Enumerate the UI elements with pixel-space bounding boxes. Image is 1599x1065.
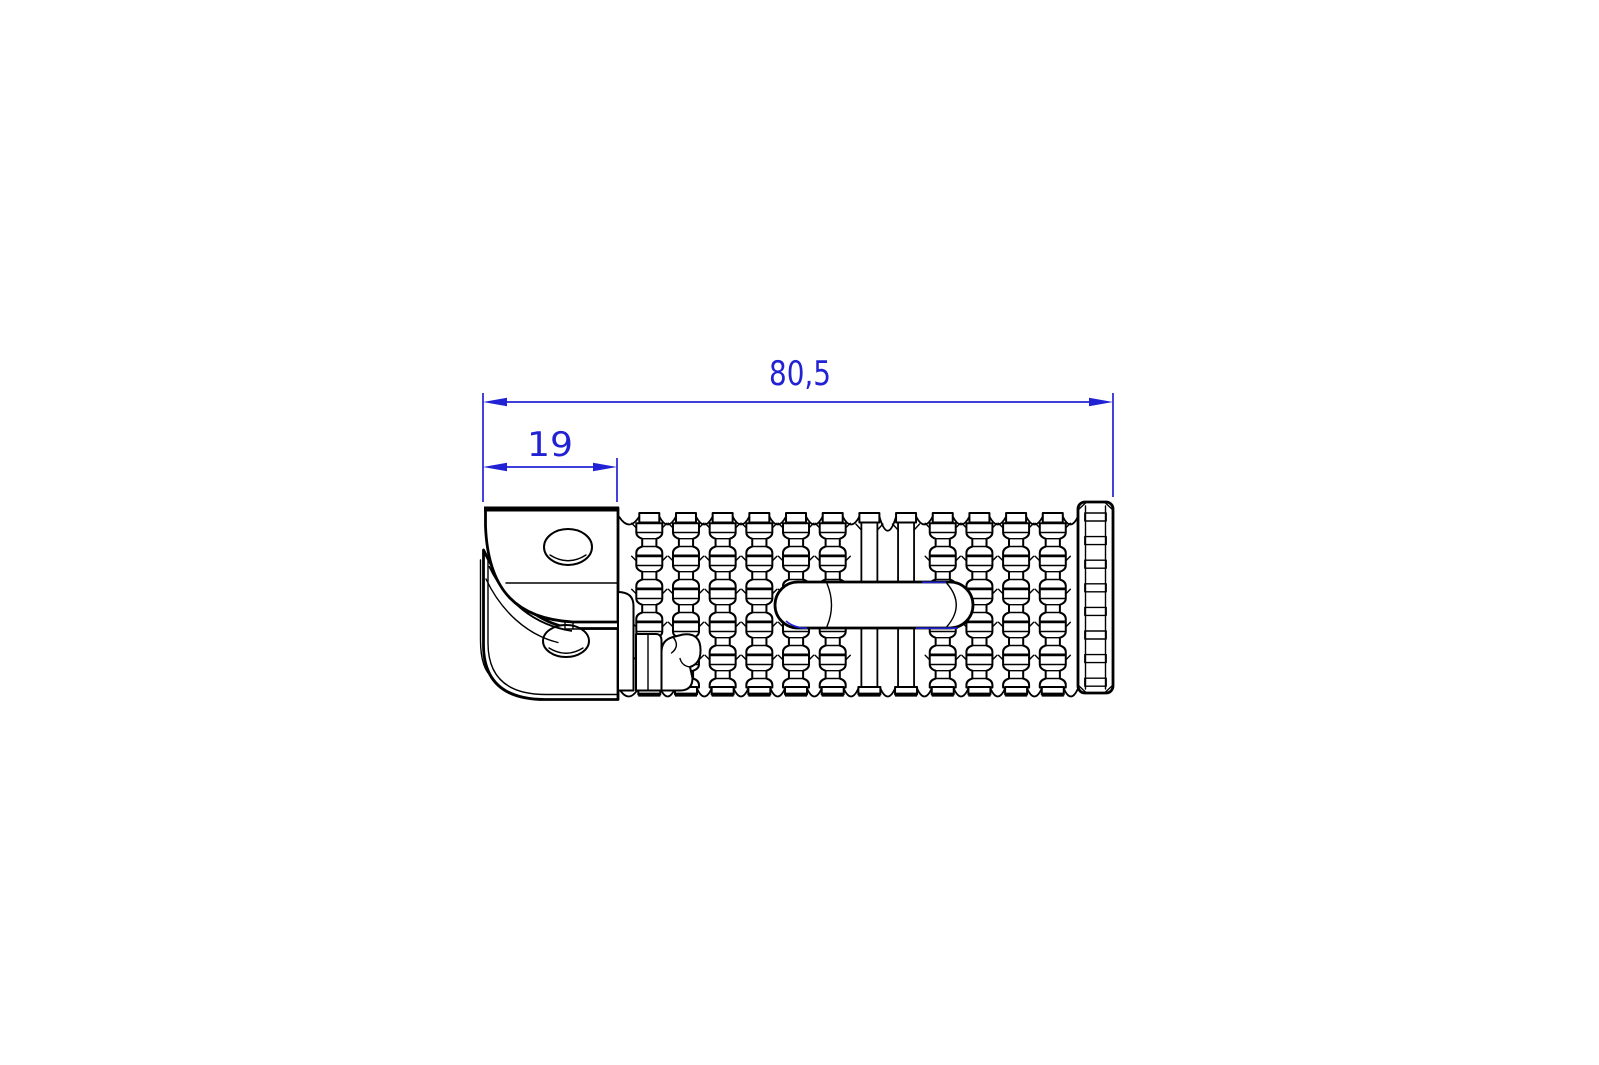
rib-column-tip [969,513,989,523]
rib-spool-unit [668,523,703,555]
rib-column-tip [896,513,916,523]
rib-spool-unit [742,655,777,687]
rib-column-tip [823,513,843,523]
rib-spool-unit [1035,556,1070,588]
dimension-annotations: 80,5 19 [483,354,1113,502]
rib-spool-unit [742,523,777,555]
mounting-bracket [481,508,620,700]
bottom-scallop [844,689,859,697]
slot-outline [775,582,973,628]
rib-spool-unit [632,523,667,555]
rib-spool-unit [815,523,850,555]
rib-spool-unit [705,556,740,588]
rib-spool-unit [742,556,777,588]
rib-spool-unit [705,589,740,621]
end-cap-outline [1078,502,1113,693]
pivot-flange [618,592,634,691]
rib-column-tip [1043,513,1063,523]
top-scallop [879,517,896,531]
bottom-scallop [697,689,712,697]
rib-spool-unit [1035,589,1070,621]
end-cap [1078,502,1113,693]
rib-column-tip [676,513,696,523]
rib-spool-unit [668,556,703,588]
rib-spool-unit [925,523,960,555]
dimension-bracket-width: 19 [483,425,617,502]
rib-spool-unit [705,622,740,654]
rib-column-tip [859,513,879,523]
rib-spool-unit [1035,622,1070,654]
rib-spool-unit [1035,523,1070,555]
rib-wing [893,524,920,530]
arrowhead-left [483,463,507,472]
rib-spool-unit [999,523,1034,555]
technical-drawing-canvas: 80,5 19 [0,0,1599,1065]
footpeg-slot [775,582,973,628]
bottom-scallop [880,689,895,697]
bottom-scallop [1027,689,1042,697]
rib-spool-unit [778,523,813,555]
bottom-scallop [917,689,932,697]
rib-column-tip [1006,513,1026,523]
rib-spool-unit [742,589,777,621]
bottom-scallop [1064,689,1078,697]
bracket-width-label: 19 [527,425,573,465]
rib-spool-unit [962,556,997,588]
rib-column-tip [749,513,769,523]
arrowhead-left [483,398,507,407]
bottom-scallop [954,689,969,697]
rib-spool-unit [962,523,997,555]
rib-spool-unit [999,556,1034,588]
rib-spool-unit [632,589,667,621]
bottom-scallop [807,689,822,697]
drawing-page: 80,5 19 [0,0,1599,1065]
bottom-scallop [770,689,785,697]
rib-spool-unit [705,655,740,687]
rib-spool-unit [815,655,850,687]
rib-spool-unit [668,589,703,621]
arrowhead-right [593,463,617,472]
rib-column-tip [933,513,953,523]
rib-spool-unit [999,655,1034,687]
rib-column-tip [639,513,659,523]
rib-spool-unit [999,589,1034,621]
upper-mounting-hole [544,529,592,565]
bottom-scallop [990,689,1005,697]
pivot-bar [636,634,662,691]
rib-spool-unit [742,622,777,654]
dimension-overall-length: 80,5 [483,354,1113,502]
rib-wing [856,524,883,530]
rib-column-tip [713,513,733,523]
rib-column-tip [786,513,806,523]
arrowhead-right [1089,398,1113,407]
rib-spool-unit [999,622,1034,654]
rib-spool-unit [925,655,960,687]
rib-spool-unit [1035,655,1070,687]
rib-spool-unit [962,622,997,654]
rib-spool-unit [632,556,667,588]
rib-spool-unit [962,655,997,687]
rib-spool-unit [778,655,813,687]
bottom-scallop [734,689,749,697]
rib-spool-unit [705,523,740,555]
overall-length-label: 80,5 [769,354,831,394]
